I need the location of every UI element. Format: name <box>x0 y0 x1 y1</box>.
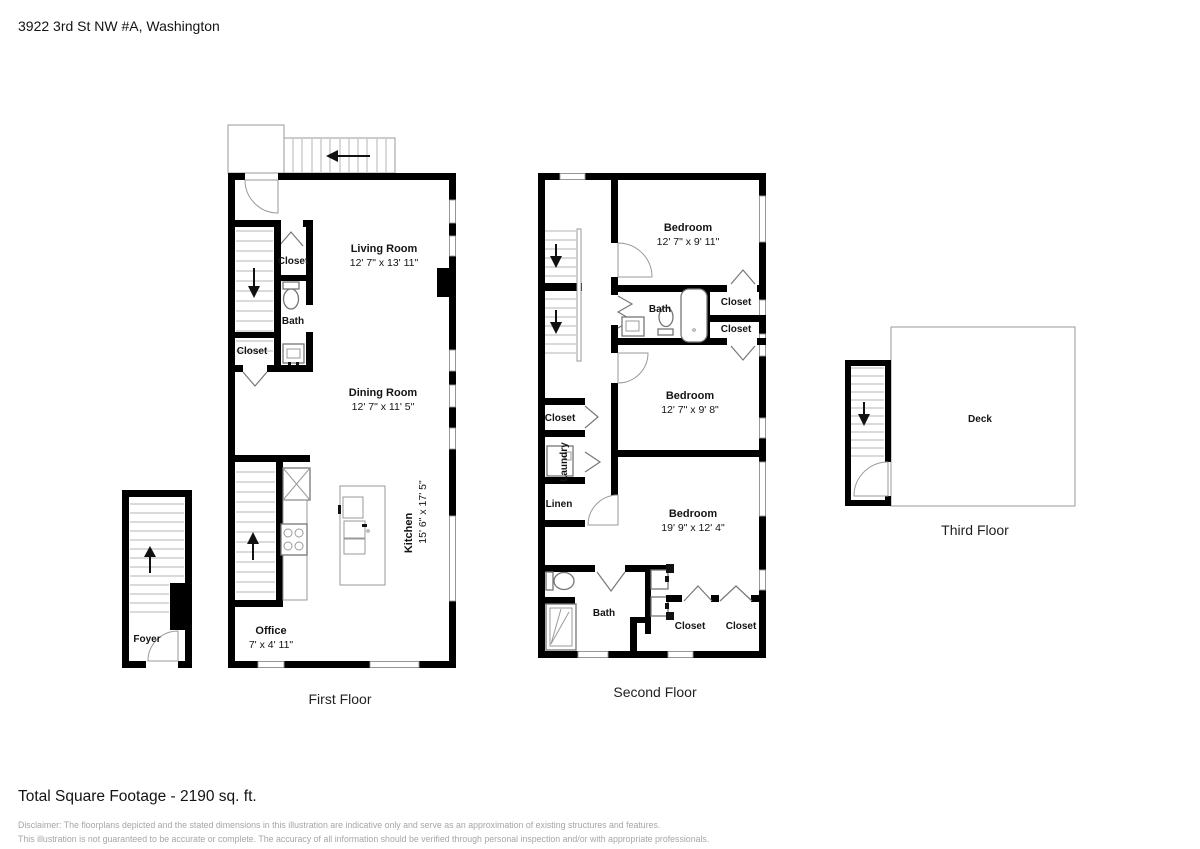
toilet-tank-icon <box>283 282 299 289</box>
bathtub-icon <box>681 289 707 342</box>
wall <box>122 490 192 497</box>
wall <box>885 360 891 462</box>
entry-landing <box>228 125 284 173</box>
door-swing-icon <box>597 572 625 591</box>
room-label-deck: Deck <box>968 414 992 425</box>
wall <box>538 283 582 291</box>
closet-door-chevron <box>684 586 712 601</box>
wall <box>711 595 719 602</box>
room-label-closet: Closet <box>721 297 752 308</box>
wall <box>845 500 891 506</box>
closet-door-chevron <box>279 232 303 246</box>
room-label-linen: Linen <box>546 499 573 510</box>
disclaimer-line-1: Disclaimer: The floorplans depicted and … <box>18 820 660 830</box>
stairs-down-arrowhead-icon <box>550 256 562 268</box>
door-arc <box>245 180 278 213</box>
room-label-foyer: Foyer <box>133 634 160 645</box>
door-arc <box>588 495 618 525</box>
stairs-down-arrowhead-icon <box>550 322 562 334</box>
window <box>450 516 456 601</box>
floorplan-page: 3922 3rd St NW #A, Washington <box>0 0 1200 849</box>
closet-door-chevron <box>243 372 267 386</box>
stairs-steps <box>851 368 884 456</box>
window <box>760 418 766 438</box>
wall <box>278 173 456 180</box>
wall <box>178 661 192 668</box>
fireplace <box>437 268 456 297</box>
faucet-dot-icon <box>367 530 370 533</box>
floor-label-second: Second Floor <box>613 684 697 700</box>
room-label-laundry: Laundry <box>559 442 570 482</box>
wall <box>710 338 727 345</box>
room-label-office: Office <box>255 625 286 637</box>
wall <box>274 365 313 372</box>
window <box>450 200 456 223</box>
closet-door-chevron <box>585 406 598 428</box>
wall <box>845 360 891 366</box>
stairs-up-arrowhead-icon <box>144 546 156 557</box>
room-label-bath: Bath <box>282 316 304 327</box>
room-label-closet: Closet <box>675 621 706 632</box>
wall <box>545 398 585 405</box>
door-arc <box>854 462 888 496</box>
wall <box>751 595 766 602</box>
sink-icon <box>622 317 644 336</box>
window <box>370 662 419 668</box>
room-label-bedroom: Bedroom <box>666 390 715 402</box>
floor-plan-first: Living Room 12' 7" x 13' 11" Dining Room… <box>122 125 456 707</box>
island-appliance-icon <box>343 497 363 518</box>
faucet-icon <box>288 362 291 365</box>
faucet-icon <box>665 576 669 582</box>
wall <box>845 360 851 506</box>
stairs-steps <box>236 472 275 592</box>
stairs-steps <box>545 299 576 353</box>
wall <box>611 180 618 243</box>
wall <box>611 450 766 457</box>
wall <box>885 496 891 506</box>
window <box>450 428 456 449</box>
room-dims-living-room: 12' 7" x 13' 11" <box>350 257 419 269</box>
window <box>760 196 766 242</box>
door-arc <box>618 353 648 383</box>
total-square-footage: Total Square Footage - 2190 sq. ft. <box>18 788 257 805</box>
room-label-living-room: Living Room <box>351 243 418 255</box>
floor-label-first: First Floor <box>309 691 372 707</box>
wall <box>235 220 278 227</box>
window <box>258 662 284 668</box>
window <box>450 350 456 371</box>
wall <box>757 285 766 292</box>
window <box>560 174 585 180</box>
wall <box>281 275 307 281</box>
faucet-icon <box>362 524 367 527</box>
closet-door-chevron <box>585 452 600 472</box>
wall-cap <box>666 564 674 573</box>
door-sill <box>578 652 608 658</box>
floorplan-canvas: 3922 3rd St NW #A, Washington <box>0 0 1200 849</box>
wall <box>630 617 637 651</box>
disclaimer-line-2: This illustration is not guaranteed to b… <box>18 834 709 844</box>
wall <box>185 490 192 668</box>
wall <box>710 315 766 322</box>
stairs-down-arrowhead-icon <box>248 286 260 298</box>
wall <box>666 595 682 602</box>
wall <box>122 661 146 668</box>
floor-plan-second: Bedroom 12' 7" x 9' 11" Bath Closet Clos… <box>538 173 766 700</box>
wall <box>545 597 575 604</box>
island-sink-icon <box>344 539 365 554</box>
room-label-bath: Bath <box>649 304 671 315</box>
island-sink-icon <box>344 521 365 538</box>
wall <box>170 583 192 630</box>
wall <box>545 565 595 572</box>
room-dims-bedroom: 19' 9" x 12' 4" <box>661 522 725 534</box>
stairs-railing <box>577 229 581 361</box>
window <box>760 570 766 590</box>
wall <box>228 600 283 607</box>
wall <box>235 365 243 372</box>
room-label-closet: Closet <box>726 621 757 632</box>
wall <box>545 430 585 437</box>
room-dims-bedroom: 12' 7" x 9' 8" <box>661 404 719 416</box>
wall <box>545 520 585 527</box>
stairs-steps <box>545 231 576 276</box>
floor-label-third: Third Floor <box>941 522 1009 538</box>
room-label-bedroom: Bedroom <box>669 508 718 520</box>
faucet-icon <box>665 603 669 609</box>
wall <box>757 338 766 345</box>
toilet-tank-icon <box>658 329 673 335</box>
room-label-dining-room: Dining Room <box>349 387 418 399</box>
faucet-icon <box>296 362 299 365</box>
wall <box>122 490 129 668</box>
toilet-icon <box>554 573 574 590</box>
sink-icon <box>283 344 304 363</box>
closet-door-chevron <box>731 270 755 284</box>
room-label-closet: Closet <box>278 256 309 267</box>
toilet-tank-icon <box>546 572 553 590</box>
island-tick <box>338 505 341 514</box>
wall <box>274 220 281 372</box>
wall <box>611 285 727 292</box>
door-sill <box>668 652 693 658</box>
wall-cap <box>666 612 674 620</box>
room-dims-bedroom: 12' 7" x 9' 11" <box>657 236 720 248</box>
room-dims-office: 7' x 4' 11" <box>249 639 294 651</box>
window <box>450 236 456 256</box>
room-label-bath: Bath <box>593 608 615 619</box>
toilet-icon <box>284 289 299 309</box>
closet-door-chevron <box>731 346 755 360</box>
room-label-closet: Closet <box>545 413 576 424</box>
window <box>450 385 456 407</box>
floor-plan-third: Deck Third Floor <box>845 327 1075 538</box>
door-arc <box>618 243 652 277</box>
closet-door-chevron <box>720 586 752 601</box>
room-dims-dining-room: 12' 7" x 11' 5" <box>352 401 415 413</box>
wall <box>267 365 274 372</box>
wall <box>645 570 651 634</box>
stove-icon <box>281 524 307 555</box>
room-label-closet: Closet <box>721 324 752 335</box>
room-label-kitchen: Kitchen <box>403 513 415 554</box>
wall <box>228 455 310 462</box>
window <box>760 462 766 516</box>
wall <box>611 383 618 497</box>
room-dims-kitchen: 15' 6" x 17' 5" <box>417 480 429 544</box>
room-label-closet: Closet <box>237 346 268 357</box>
room-label-bedroom: Bedroom <box>664 222 713 234</box>
stairs-up-arrowhead-icon <box>247 532 259 544</box>
wall <box>538 651 766 658</box>
wall <box>228 173 235 668</box>
address-title: 3922 3rd St NW #A, Washington <box>18 18 220 34</box>
wall <box>228 332 274 338</box>
